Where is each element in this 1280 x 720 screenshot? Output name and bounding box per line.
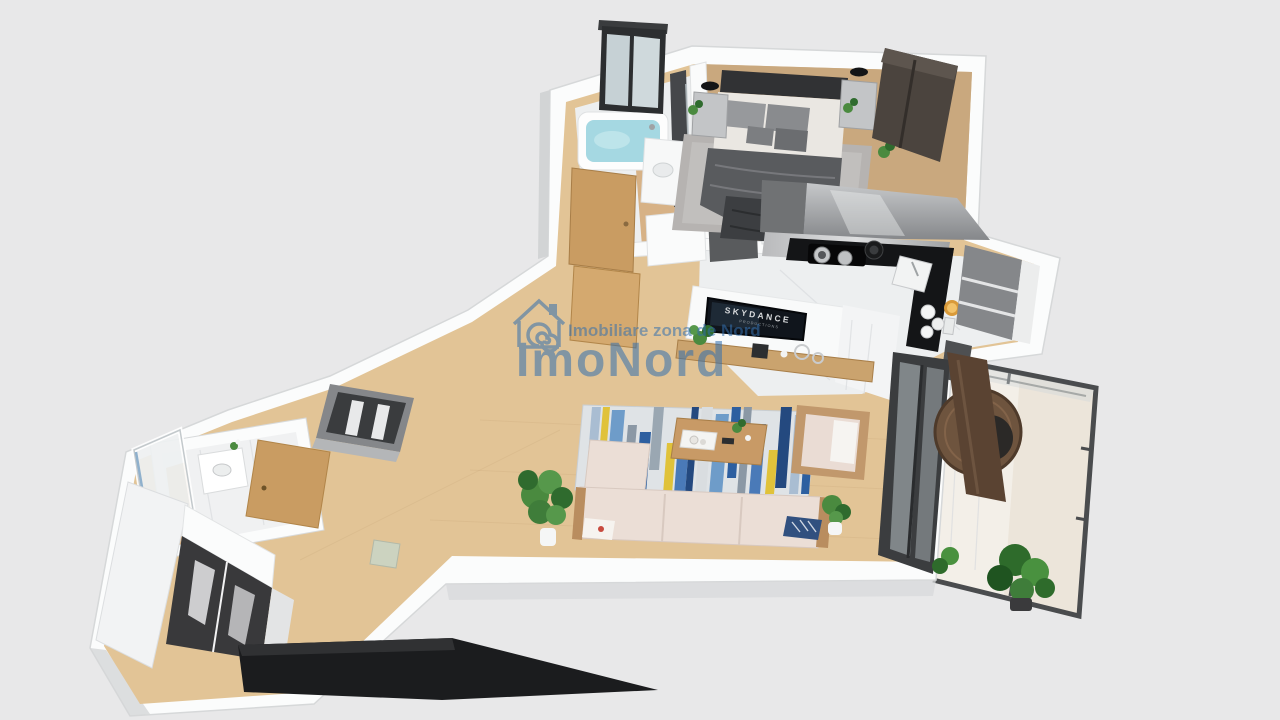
door-handle [624,222,629,227]
lamp-left [701,82,719,91]
bathroom-sink [653,163,673,177]
wall-shadow-left [538,90,550,259]
bed-pillow [723,100,766,130]
bathroom-window-black [598,20,668,114]
bed-pillow-small [746,126,774,146]
hall-window-gray [312,384,414,462]
lamp-right [850,68,868,77]
pot [838,251,852,265]
armchair-throw [830,420,858,464]
kitchen-upper-cabinet-dark [760,180,807,238]
nightstand-left [692,92,728,138]
hall-picture-sage [370,540,400,568]
oak-door-panel [569,168,636,272]
entrance-door-handle [262,486,267,491]
bath-faucet [649,124,655,130]
floor-plan-canvas: SKYDANCE PRODUCTIONS [0,0,1280,720]
watermark-brand: ImoNord [516,334,727,387]
kitchen-shelf-unit [956,245,1022,340]
small-sink [213,464,231,476]
pillow-navy [783,516,822,540]
entrance-door-oak [246,440,330,528]
bed-pillow-small [774,128,808,152]
sofa-seat [576,487,822,548]
pillow-red-accent [598,526,604,532]
